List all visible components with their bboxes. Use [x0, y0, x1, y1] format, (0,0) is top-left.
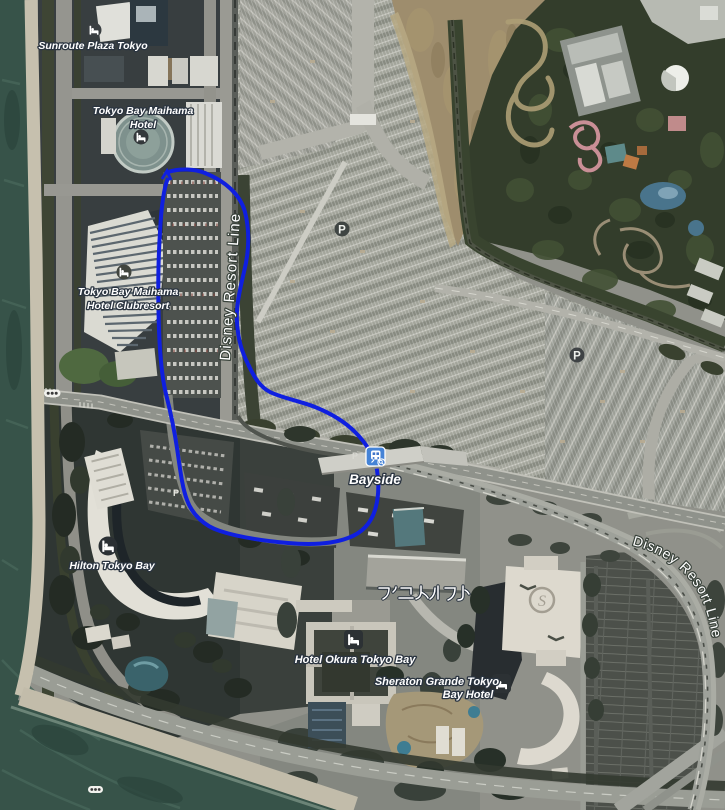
svg-text:Sheraton Grande Tokyo: Sheraton Grande Tokyo	[375, 676, 500, 688]
svg-text:S: S	[538, 593, 546, 610]
svg-text:Hotel Clubresort: Hotel Clubresort	[87, 300, 170, 312]
svg-text:Tokyo Bay Maihama: Tokyo Bay Maihama	[93, 105, 194, 117]
svg-text:Hotel: Hotel	[130, 119, 157, 131]
svg-text:Tokyo Bay Maihama: Tokyo Bay Maihama	[78, 286, 179, 298]
svg-text:P: P	[573, 351, 581, 363]
svg-text:Hilton Tokyo Bay: Hilton Tokyo Bay	[69, 560, 156, 572]
svg-text:P: P	[173, 488, 179, 498]
svg-text:Hotel Okura Tokyo Bay: Hotel Okura Tokyo Bay	[295, 654, 417, 666]
svg-text:Bayside: Bayside	[349, 472, 401, 487]
svg-text:Bay Hotel: Bay Hotel	[443, 689, 495, 701]
svg-text:Sunroute Plaza Tokyo: Sunroute Plaza Tokyo	[38, 40, 148, 52]
svg-text:P: P	[338, 225, 346, 237]
svg-text:P: P	[352, 451, 358, 461]
